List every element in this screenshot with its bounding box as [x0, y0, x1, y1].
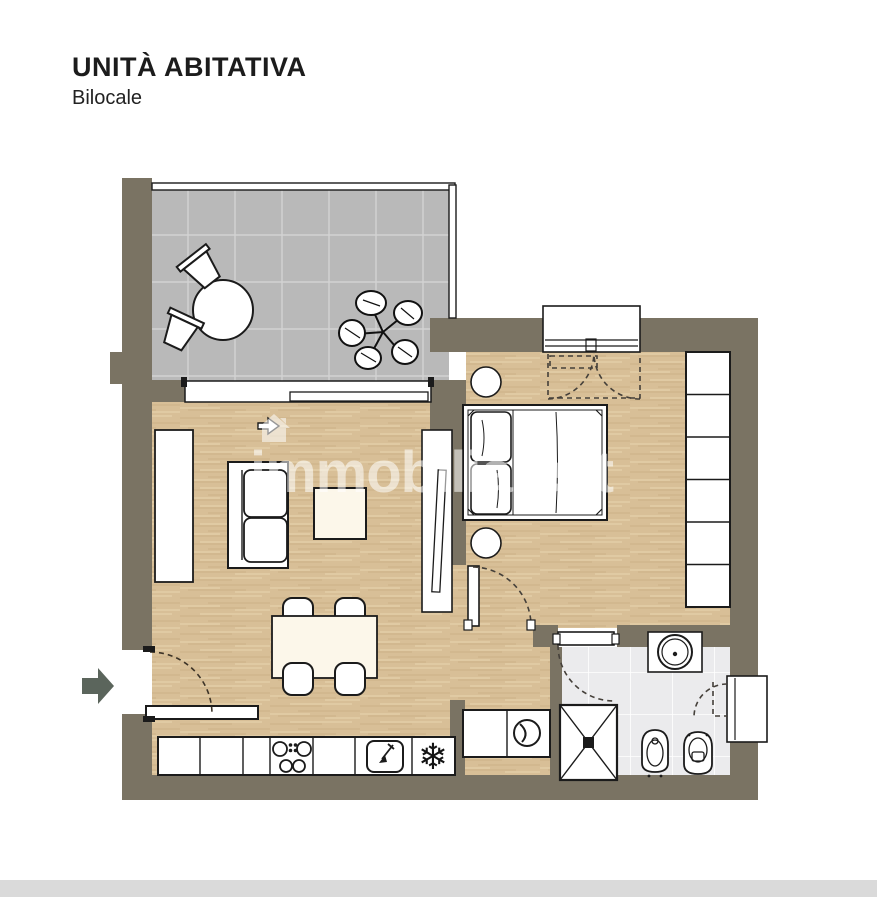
- door-leaf: [468, 566, 479, 626]
- round-table-icon: [193, 280, 253, 340]
- wall-pilaster: [110, 352, 122, 384]
- wardrobe-icon: [686, 352, 730, 607]
- washbasin-icon: [648, 632, 702, 672]
- bidet-icon: [642, 730, 668, 777]
- page-bottom-strip: [0, 880, 877, 897]
- wall-bedroom-top-left: [430, 318, 543, 352]
- wall-balcony-stub: [152, 380, 185, 402]
- sink-icon: [367, 741, 403, 772]
- wall-left-upper: [122, 178, 152, 650]
- balcony-railing-right: [449, 185, 456, 318]
- fridge-snowflake-icon: ❄: [418, 737, 448, 778]
- dining-chair-icon: [335, 663, 365, 695]
- floor-plan: ❄: [0, 0, 877, 897]
- watermark-text: immobiliare.it: [250, 440, 614, 505]
- toilet-icon: [684, 732, 712, 774]
- kitchen: ❄: [158, 737, 455, 778]
- page: UNITÀ ABITATIVA Bilocale: [0, 0, 877, 897]
- dining-chair-icon: [283, 663, 313, 695]
- balcony-railing-top: [152, 183, 455, 190]
- wall-left-lower: [122, 714, 152, 780]
- wall-bottom: [122, 775, 758, 800]
- shower-icon: [560, 705, 617, 780]
- entry-door-leaf: [146, 706, 258, 719]
- nightstand-icon: [471, 528, 501, 558]
- door-leaf: [558, 632, 614, 645]
- wall-bedroom-top-right: [640, 318, 730, 352]
- entry-arrow-icon: [82, 668, 114, 704]
- tall-cabinet-icon: [155, 430, 193, 582]
- nightstand-icon: [471, 367, 501, 397]
- laundry-niche: [463, 710, 550, 757]
